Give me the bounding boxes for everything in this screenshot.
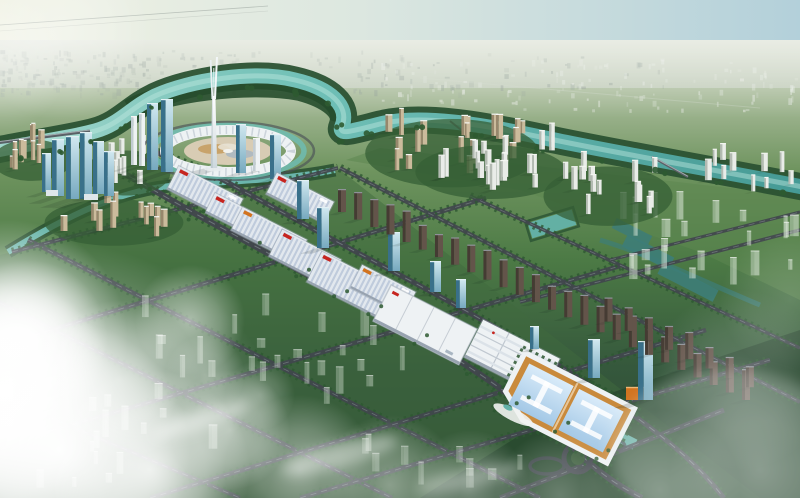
aerial-city-render-canvas — [0, 0, 800, 498]
aerial-city-render: Aerial master-plan rendering of a rivers… — [0, 0, 800, 498]
